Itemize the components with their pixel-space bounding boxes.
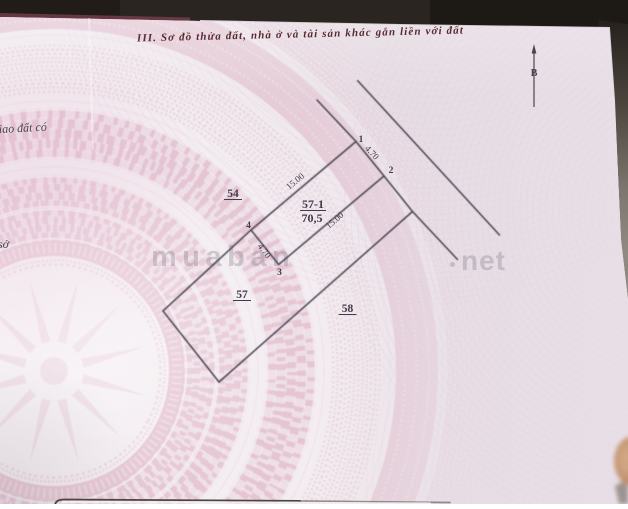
svg-text:sở: sở [0, 237, 10, 251]
svg-text:iao đất có: iao đất có [0, 120, 47, 136]
svg-text:58: 58 [342, 303, 354, 315]
svg-text:4: 4 [246, 221, 251, 231]
svg-text:70,5: 70,5 [302, 211, 323, 225]
svg-text:54: 54 [227, 188, 239, 200]
svg-text:3: 3 [277, 268, 282, 278]
svg-text:1: 1 [359, 135, 364, 145]
svg-text:B: B [531, 68, 538, 79]
svg-text:net: net [461, 245, 506, 276]
svg-text:57: 57 [236, 289, 248, 301]
svg-text:2: 2 [389, 166, 394, 176]
svg-text:57-1: 57-1 [302, 197, 324, 211]
